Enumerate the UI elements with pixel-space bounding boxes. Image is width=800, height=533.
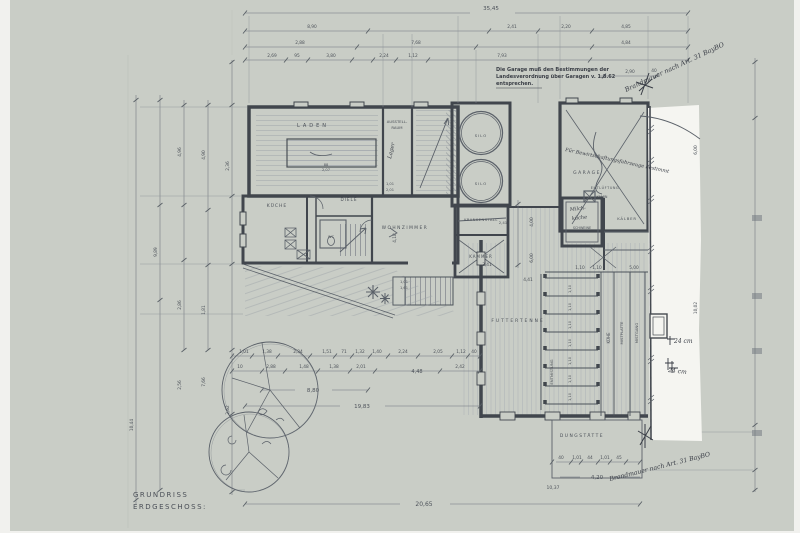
floor-plan-drawing: LADEN AUSSTELL- RAUM KÜCHE DIELE WC WOHN…: [0, 0, 800, 533]
overall-top-dimension: 35,45: [483, 6, 499, 12]
drawing-title-line1: GRUNDRISS: [133, 491, 188, 499]
drawing-title-line2: ERDGESCHOSS:: [133, 503, 207, 511]
room-label-dungstaette: DUNGSTÄTTE: [560, 432, 604, 439]
dimension-label: 1,12: [456, 349, 466, 355]
dimension-label: 10: [237, 364, 243, 370]
wall-thickness-note-1: 24 cm: [673, 338, 693, 345]
dimension-label: 1,10: [568, 284, 572, 293]
dimension-label: 40: [471, 349, 477, 355]
plant-symbol-2: [380, 293, 390, 304]
dimension-label: 2,07: [322, 168, 330, 172]
dimension-label: 4,96: [177, 147, 183, 157]
dimension-label: 71: [341, 349, 347, 355]
dimension-label: 5,00: [629, 265, 639, 271]
dimension-label: 4,41: [523, 277, 533, 283]
scanned-floor-plan: LADEN AUSSTELL- RAUM KÜCHE DIELE WC WOHN…: [0, 0, 800, 533]
dimension-label: 6,00: [529, 253, 535, 263]
room-label-kaelber: KÄLBER: [617, 216, 637, 221]
dimension-label: 2,24: [398, 349, 408, 355]
dimension-label: 2,41: [499, 220, 508, 225]
dimension-label: 1,40: [372, 349, 382, 355]
room-label-entlueftung: ENTLÜFTUNG: [591, 185, 620, 190]
dimension-label: 1,10: [575, 265, 585, 271]
dimension-label: 3,80: [326, 53, 336, 59]
dimension-label: 1,01: [386, 182, 394, 186]
dimension-label: 2,88: [295, 40, 305, 46]
dimension-label: 2,69: [267, 53, 277, 59]
room-label-silo-2: SILO: [475, 181, 488, 186]
dimension-label: 10,44: [129, 419, 135, 432]
dimension-label: 1,10: [568, 392, 572, 401]
dimension-label: 88: [324, 163, 329, 167]
stair-width-dimension: 4,48: [411, 369, 422, 375]
dimension-label: 4,18: [392, 233, 398, 243]
dimension-label: 40: [558, 455, 564, 461]
dimension-label: 2,34: [293, 349, 303, 355]
dimension-label: 1,10: [568, 356, 572, 365]
dimension-label: 9,89: [153, 247, 159, 257]
room-label-ausstellraum-1: AUSSTELL-: [387, 119, 408, 124]
dimension-label: 2,62: [225, 405, 231, 415]
dimension-label: 1,32: [355, 349, 365, 355]
redrawn-wall: [650, 106, 651, 440]
dimension-label: 1,61: [400, 286, 408, 290]
room-label-mistgang: MISTGANG: [634, 323, 639, 344]
dimension-label: 1,01: [400, 280, 408, 284]
dimension-label: 1,51: [322, 349, 332, 355]
dimension-label: 4,00: [529, 217, 535, 227]
overall-bottom-dimension: 20,65: [415, 501, 432, 508]
room-label-futtertenne: FUTTERTENNE: [491, 318, 544, 324]
dimension-label: 1,10: [592, 265, 602, 271]
right-total-dimension: 19,83: [354, 404, 370, 410]
dimension-label: 95: [294, 53, 300, 59]
dimension-label: 2,01: [386, 188, 394, 192]
dimension-label: 2,42: [455, 364, 465, 370]
room-label-wc: WC: [328, 234, 335, 239]
room-label-mistplatte: MISTPLATTE: [619, 321, 624, 344]
dimension-label: 1,01: [600, 455, 610, 461]
dimension-label: 2,20: [561, 24, 571, 30]
dimension-label: 4,90: [201, 150, 207, 160]
dimension-label: 1,10: [568, 302, 572, 311]
dimension-label: 7,66: [201, 377, 207, 387]
dimension-label: 2,36: [225, 161, 231, 171]
room-label-silo-1: SILO: [475, 133, 488, 138]
room-label-laden: LADEN: [297, 123, 329, 129]
pillar: [650, 314, 667, 338]
dimension-label: 10,02: [693, 302, 699, 315]
dimension-label: 1,10: [568, 320, 572, 329]
shop-counter: [287, 139, 376, 167]
dimension-label: 2,86: [177, 300, 183, 310]
dimension-label: 7,93: [497, 53, 507, 59]
plant-symbol-1: [366, 285, 380, 299]
room-label-kammer: KAMMER: [469, 254, 493, 259]
dimension-label: 1,12: [408, 53, 418, 59]
dimension-label: 2,01: [356, 364, 366, 370]
dimension-label: 8,90: [307, 24, 317, 30]
dung-width-dimension: 4,20: [591, 475, 604, 481]
dimension-label: 2,88: [266, 364, 276, 370]
dimension-label: 6,00: [693, 145, 699, 155]
dimension-label: 1,38: [262, 349, 272, 355]
room-label-garage: GARAGE: [573, 170, 601, 176]
dimension-label: 1,01: [572, 455, 582, 461]
dimension-label: 1,10: [568, 374, 572, 383]
dimension-label: 3,41: [482, 262, 492, 268]
room-label-diele: DIELE: [340, 197, 357, 202]
dimension-label: 1,01: [239, 349, 249, 355]
front-width-dimension: 8,80: [307, 388, 320, 394]
room-label-wohnzimmer: WOHNZIMMER: [382, 225, 428, 231]
dimension-label: 1,81: [201, 305, 207, 315]
dimension-label: 2,24: [379, 53, 389, 59]
room-label-schweine: SCHWEINE: [573, 226, 591, 230]
room-label-kuehe: KÜHE: [606, 332, 611, 343]
dimension-label: 1,48: [299, 364, 309, 370]
dimension-label: 10,37: [547, 485, 560, 491]
room-label-krankenstall: KRANKENSTALL: [464, 218, 498, 222]
dimension-label: 45: [616, 455, 622, 461]
room-label-kamin: KAMIN: [597, 195, 608, 199]
dimension-label: 2,90: [625, 69, 635, 75]
dimension-label: 1,38: [329, 364, 339, 370]
room-label-ausstellraum-2: RAUM: [391, 125, 402, 130]
garage-regulation-note-line3: entsprechen.: [496, 81, 533, 87]
dimension-label: 44: [587, 455, 593, 461]
dimension-label: 2,56: [177, 380, 183, 390]
dimension-label: 4,84: [621, 40, 631, 46]
garage-regulation-note-line2: Landesverordnung über Garagen v. 1.8.62: [496, 74, 616, 80]
room-label-entmistung: ENTMISTUNG: [549, 359, 554, 384]
dimension-label: 2,05: [433, 349, 443, 355]
dimension-label: 4,85: [621, 24, 631, 30]
dimension-label: 2,41: [507, 24, 517, 30]
room-label-kueche: KÜCHE: [267, 202, 288, 209]
dimension-label: 1,10: [568, 338, 572, 347]
dimension-label: 7,68: [411, 40, 421, 46]
garage-regulation-note-line1: Die Garage muß den Bestimmungen der: [496, 67, 609, 73]
